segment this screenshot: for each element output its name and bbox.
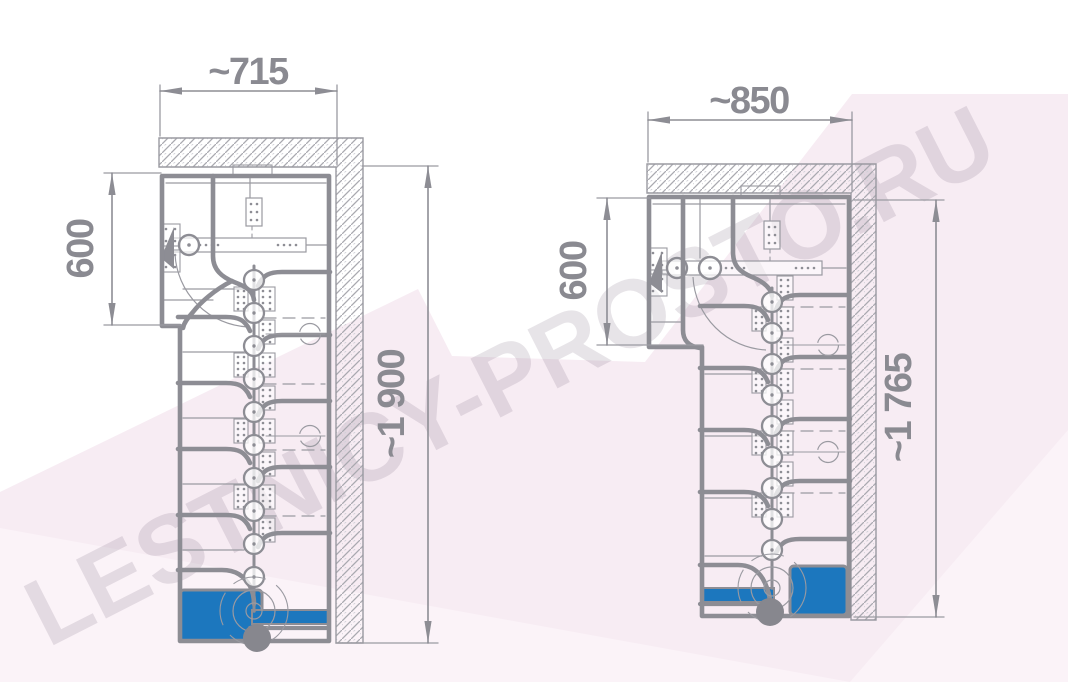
screw-dot <box>262 494 265 497</box>
screw-dot <box>269 494 272 497</box>
screw-dot <box>262 395 265 398</box>
screw-dot <box>256 203 259 206</box>
screw-dot <box>755 378 758 381</box>
screw-dot <box>780 310 783 313</box>
dimension-arrowhead <box>160 87 182 94</box>
screw-dot <box>787 508 790 511</box>
screw-dot <box>277 244 280 247</box>
spine-module-dot <box>770 548 773 551</box>
spine-module-dot <box>770 517 773 520</box>
screw-dot <box>787 310 790 313</box>
screw-dot <box>243 500 246 503</box>
screw-dot <box>780 353 783 356</box>
screw-dot <box>269 302 272 305</box>
first-step <box>790 566 847 615</box>
screw-dot <box>787 514 790 517</box>
screw-dot <box>250 211 253 214</box>
screw-dot <box>174 228 177 231</box>
spine-module-dot <box>770 486 773 489</box>
screw-dot <box>731 267 734 270</box>
screw-dot <box>262 527 265 530</box>
dimension-arrowhead <box>108 173 115 195</box>
screw-dot <box>780 465 783 468</box>
spine-module-dot <box>770 300 773 303</box>
screw-dot <box>269 341 272 344</box>
screw-dot <box>755 514 758 517</box>
pivot-center-dot <box>187 243 191 247</box>
screw-dot <box>755 384 758 387</box>
screw-dot <box>262 368 265 371</box>
screw-dot <box>787 316 790 319</box>
screw-dot <box>237 440 240 443</box>
screw-dot <box>243 434 246 437</box>
dimension-arrowhead <box>108 303 115 325</box>
screw-dot <box>269 422 272 425</box>
screw-dot <box>787 285 790 288</box>
screw-dot <box>262 323 265 326</box>
dimension-arrowhead <box>648 116 670 123</box>
screw-dot <box>780 477 783 480</box>
screw-dot <box>262 356 265 359</box>
screw-dot <box>237 488 240 491</box>
screw-dot <box>761 502 764 505</box>
screw-dot <box>237 500 240 503</box>
screw-dot <box>165 240 168 243</box>
screw-dot <box>262 434 265 437</box>
screw-dot <box>761 316 764 319</box>
screw-dot <box>787 322 790 325</box>
screw-dot <box>237 434 240 437</box>
screw-dot <box>269 461 272 464</box>
screw-dot <box>165 228 168 231</box>
screw-dot <box>237 422 240 425</box>
spine-module-dot <box>770 331 773 334</box>
screw-dot <box>780 285 783 288</box>
screw-dot <box>269 488 272 491</box>
screw-dot <box>755 452 758 455</box>
screw-dot <box>269 440 272 443</box>
screw-dot <box>243 368 246 371</box>
dimension-arrowhead <box>424 166 431 188</box>
screw-dot <box>652 264 655 267</box>
dimension-arrowhead <box>315 87 337 94</box>
screw-dot <box>787 440 790 443</box>
screw-dot <box>780 372 783 375</box>
screw-dot <box>787 477 790 480</box>
screw-dot <box>787 291 790 294</box>
screw-dot <box>243 356 246 359</box>
screw-dot <box>780 508 783 511</box>
screw-dot <box>787 403 790 406</box>
screw-dot <box>205 244 208 247</box>
screw-dot <box>743 267 746 270</box>
screw-dot <box>243 362 246 365</box>
screw-dot <box>269 521 272 524</box>
screw-dot <box>780 279 783 282</box>
spine-module-dot <box>770 393 773 396</box>
support-plate <box>246 198 262 226</box>
screw-dot <box>217 244 220 247</box>
newel-post <box>243 624 271 652</box>
screw-dot <box>262 428 265 431</box>
dimension-label: ~850 <box>709 80 789 122</box>
screw-dot <box>780 384 783 387</box>
screw-dot <box>761 378 764 381</box>
screw-dot <box>787 502 790 505</box>
screw-dot <box>787 390 790 393</box>
screw-dot <box>237 428 240 431</box>
screw-dot <box>787 384 790 387</box>
spine-module-dot <box>252 476 255 479</box>
screw-dot <box>780 471 783 474</box>
screw-dot <box>761 440 764 443</box>
screw-dot <box>237 308 240 311</box>
dimension-label: 600 <box>60 219 102 278</box>
screw-dot <box>237 356 240 359</box>
screw-dot <box>780 502 783 505</box>
screw-dot <box>250 219 253 222</box>
screw-dot <box>269 356 272 359</box>
pivot-center-dot <box>675 266 679 270</box>
screw-dot <box>269 296 272 299</box>
screw-dot <box>262 389 265 392</box>
screw-dot <box>262 329 265 332</box>
screw-dot <box>250 203 253 206</box>
screw-dot <box>262 335 265 338</box>
screw-dot <box>269 389 272 392</box>
screw-dot <box>283 244 286 247</box>
screw-dot <box>813 267 816 270</box>
screw-dot <box>787 378 790 381</box>
screw-dot <box>787 409 790 412</box>
spine-module-dot <box>252 509 255 512</box>
screw-dot <box>787 328 790 331</box>
screw-dot <box>243 296 246 299</box>
screw-dot <box>269 407 272 410</box>
screw-dot <box>243 488 246 491</box>
screw-dot <box>774 242 777 245</box>
screw-dot <box>755 502 758 505</box>
screw-dot <box>755 328 758 331</box>
screw-dot <box>269 428 272 431</box>
screw-dot <box>780 322 783 325</box>
screw-dot <box>780 378 783 381</box>
spiral-center-dot <box>252 609 256 613</box>
stairs-diagram-canvas: LESTNICY-PROSTO.RU~715600~1 900~850600~1… <box>0 0 1068 682</box>
screw-dot <box>237 362 240 365</box>
screw-dot <box>761 508 764 511</box>
screw-dot <box>262 302 265 305</box>
screw-dot <box>787 471 790 474</box>
screw-dot <box>262 422 265 425</box>
screw-dot <box>262 500 265 503</box>
screw-dot <box>780 347 783 350</box>
screw-dot <box>795 267 798 270</box>
screw-dot <box>787 279 790 282</box>
screw-dot <box>787 341 790 344</box>
screw-dot <box>237 368 240 371</box>
screw-dot <box>262 455 265 458</box>
screw-dot <box>801 267 804 270</box>
screw-dot <box>755 440 758 443</box>
landing-stringer <box>183 281 232 328</box>
screw-dot <box>262 401 265 404</box>
spine-module-dot <box>770 455 773 458</box>
screw-dot <box>262 362 265 365</box>
support-plate <box>764 221 780 249</box>
screw-dot <box>774 234 777 237</box>
spine-module-dot <box>252 344 255 347</box>
dimension-label: 600 <box>553 241 595 300</box>
screw-dot <box>165 266 168 269</box>
screw-dot <box>289 244 292 247</box>
screw-dot <box>269 368 272 371</box>
screw-dot <box>243 494 246 497</box>
screw-dot <box>780 440 783 443</box>
screw-dot <box>262 521 265 524</box>
screw-dot <box>787 434 790 437</box>
screw-dot <box>780 403 783 406</box>
spine-module-dot <box>252 410 255 413</box>
screw-dot <box>787 446 790 449</box>
screw-dot <box>787 347 790 350</box>
screw-dot <box>755 508 758 511</box>
screw-dot <box>262 533 265 536</box>
screw-dot <box>780 291 783 294</box>
screw-dot <box>787 415 790 418</box>
screw-dot <box>256 219 259 222</box>
screw-dot <box>269 500 272 503</box>
dimension-arrowhead <box>603 198 610 220</box>
screw-dot <box>725 267 728 270</box>
screw-dot <box>256 211 259 214</box>
screw-dot <box>761 322 764 325</box>
stringer-link <box>178 317 250 331</box>
dimension-label: ~715 <box>208 51 289 93</box>
screw-dot <box>269 473 272 476</box>
screw-dot <box>780 341 783 344</box>
screw-dot <box>269 506 272 509</box>
first-step-riser <box>252 610 328 624</box>
screw-dot <box>761 446 764 449</box>
screw-dot <box>237 506 240 509</box>
spine-module-dot <box>770 362 773 365</box>
screw-dot <box>787 353 790 356</box>
screw-dot <box>243 428 246 431</box>
screw-dot <box>787 372 790 375</box>
screw-dot <box>237 290 240 293</box>
screw-dot <box>237 494 240 497</box>
screw-dot <box>237 302 240 305</box>
spine-module-dot <box>770 424 773 427</box>
spine-module-dot <box>252 542 255 545</box>
screw-dot <box>755 446 758 449</box>
screw-dot <box>262 488 265 491</box>
screw-dot <box>807 267 810 270</box>
screw-dot <box>787 496 790 499</box>
screw-dot <box>262 461 265 464</box>
spine-module-dot <box>252 311 255 314</box>
screw-dot <box>768 234 771 237</box>
spine-module-dot <box>252 278 255 281</box>
screw-dot <box>780 415 783 418</box>
screw-dot <box>269 455 272 458</box>
screw-dot <box>243 290 246 293</box>
screw-dot <box>269 395 272 398</box>
screw-dot <box>652 290 655 293</box>
screw-dot <box>262 290 265 293</box>
spine-module-dot <box>252 443 255 446</box>
screw-dot <box>755 316 758 319</box>
screw-dot <box>237 374 240 377</box>
screw-dot <box>269 290 272 293</box>
screw-dot <box>262 296 265 299</box>
screw-dot <box>780 446 783 449</box>
screw-dot <box>768 226 771 229</box>
screw-dot <box>269 374 272 377</box>
stringer-link <box>258 272 330 286</box>
screw-dot <box>269 539 272 542</box>
screw-dot <box>652 252 655 255</box>
screw-dot <box>269 329 272 332</box>
screw-dot <box>174 240 177 243</box>
screw-dot <box>768 242 771 245</box>
spiral-center-dot <box>770 586 774 590</box>
screw-dot <box>269 308 272 311</box>
screw-dot <box>755 390 758 393</box>
newel-post <box>756 598 784 626</box>
screw-dot <box>269 362 272 365</box>
screw-dot <box>755 322 758 325</box>
dimension-label: ~1 765 <box>878 352 920 462</box>
screw-dot <box>269 323 272 326</box>
stairs-diagram: LESTNICY-PROSTO.RU~715600~1 900~850600~1… <box>0 0 1068 682</box>
screw-dot <box>780 434 783 437</box>
spine-module-dot <box>252 377 255 380</box>
screw-dot <box>243 422 246 425</box>
screw-dot <box>269 527 272 530</box>
screw-dot <box>780 496 783 499</box>
screw-dot <box>774 226 777 229</box>
screw-dot <box>780 409 783 412</box>
screw-dot <box>780 316 783 319</box>
screw-dot <box>262 467 265 470</box>
screw-dot <box>761 384 764 387</box>
screw-dot <box>787 465 790 468</box>
screw-dot <box>237 296 240 299</box>
screw-dot <box>295 244 298 247</box>
dimension-label: ~1 900 <box>371 349 413 458</box>
pivot-center-dot <box>708 266 712 270</box>
screw-dot <box>243 302 246 305</box>
